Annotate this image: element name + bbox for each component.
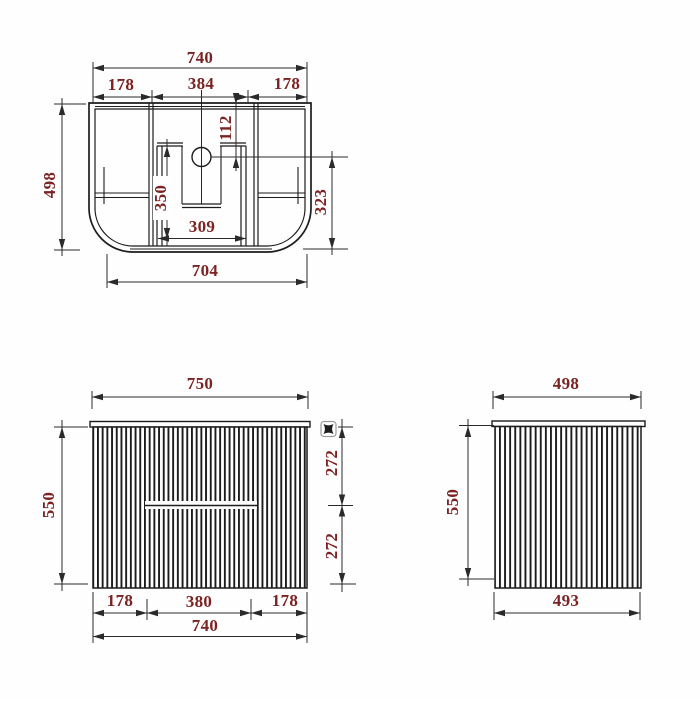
fluted-side-panel [495,427,641,589]
dim-cutout-width: 309 [158,217,246,242]
dim-side-height: 550 [443,419,494,586]
dim-label: 112 [216,115,235,140]
dim-side-top-depth: 498 [493,374,641,409]
dim-front-height: 550 [39,420,88,591]
dim-label: 493 [553,591,579,610]
dim-label: 384 [188,74,215,93]
dim-label: 704 [192,261,219,280]
dim-label: 550 [39,492,58,518]
vanity-dimension-drawing: 740 178 384 178 112 [0,0,700,700]
dim-label: 272 [322,450,341,476]
dim-base-width: 704 [107,254,307,288]
left-shelf [95,167,149,204]
dim-front-cabinet-width: 740 [93,616,307,640]
dim-cutout-length: 350 [151,139,171,246]
top-view-plan: 740 178 384 178 112 [40,48,348,288]
dim-hole-to-back: 112 [216,93,239,171]
dim-label: 178 [274,74,300,93]
left-divider [149,103,153,246]
right-divider [254,103,258,246]
dim-front-top-width: 750 [92,374,308,409]
countertop-edge [90,422,310,428]
dim-label: 309 [189,217,215,236]
dim-label: 498 [40,172,59,198]
dim-side-body-depth: 493 [494,591,640,620]
dim-label: 178 [107,591,133,610]
front-view: 750 550 272 272 [39,374,356,643]
side-view: 498 550 493 [443,374,645,620]
corner-marker-icon [321,422,336,437]
dim-label: 272 [322,533,341,559]
dim-label: 740 [187,48,213,67]
dim-plan-depth: 498 [40,98,86,256]
dim-label: 178 [108,75,134,94]
dim-label: 380 [186,592,212,611]
dim-label: 178 [272,591,298,610]
right-shelf [258,167,305,204]
dim-label: 750 [187,374,213,393]
countertop-edge-side [492,421,645,427]
dim-label: 550 [443,489,462,515]
technical-drawing-page: 740 178 384 178 112 [0,0,700,700]
dim-front-halves: 272 272 [322,419,356,592]
dim-label: 323 [311,189,330,215]
dim-label: 498 [553,374,579,393]
dim-hole-to-front: 323 [303,151,348,255]
dim-plan-sections: 178 384 178 [93,74,307,103]
dim-label: 740 [192,616,218,635]
dim-label: 350 [151,185,170,211]
